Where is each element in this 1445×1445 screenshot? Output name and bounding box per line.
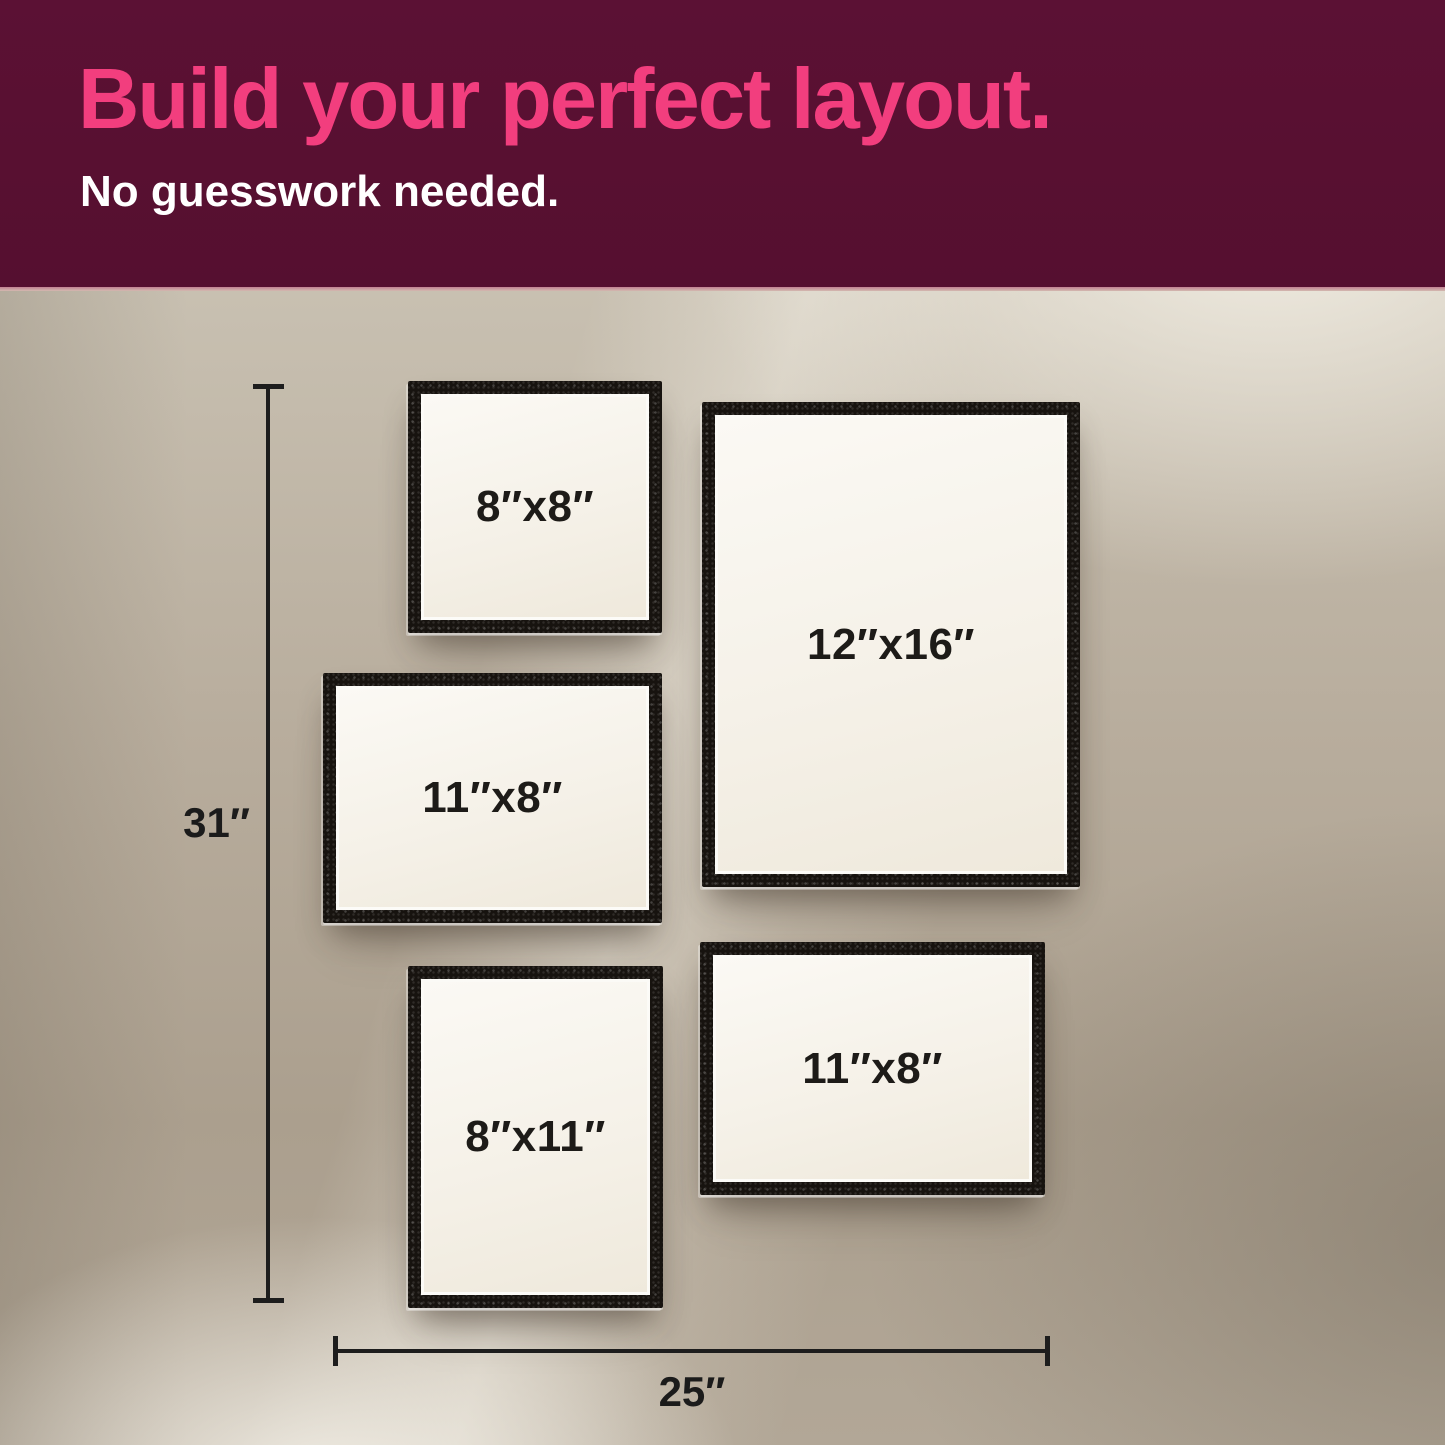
width-dimension-label: 25″ [612, 1368, 772, 1416]
wall-photo: 8″x8″ 12″x16″ 11″x8″ 8″x11″ 11″x8″ 3 [0, 291, 1445, 1445]
frame-12x16-paper: 12″x16″ [715, 415, 1067, 874]
height-dimension-line [266, 386, 270, 1302]
frame-11x8-bottom-right-paper: 11″x8″ [713, 955, 1032, 1182]
frame-size-label: 12″x16″ [807, 620, 975, 670]
width-dimension-left-cap [333, 1336, 338, 1366]
height-dimension-top-cap [253, 384, 284, 389]
frame-size-label: 8″x8″ [476, 482, 594, 532]
height-dimension-label: 31″ [140, 799, 250, 847]
width-dimension-line [335, 1349, 1048, 1353]
frame-11x8-middle-left-paper: 11″x8″ [336, 686, 649, 910]
frame-8x11-paper: 8″x11″ [421, 979, 650, 1295]
frame-8x8-paper: 8″x8″ [421, 394, 649, 620]
frame-8x11: 8″x11″ [408, 966, 663, 1308]
page-subtitle: No guesswork needed. [80, 168, 559, 216]
frame-size-label: 11″x8″ [802, 1044, 943, 1094]
frame-8x8: 8″x8″ [408, 381, 662, 633]
frame-size-label: 11″x8″ [422, 773, 563, 823]
width-dimension-right-cap [1045, 1336, 1050, 1366]
page-title: Build your perfect layout. [78, 54, 1051, 146]
height-dimension-bottom-cap [253, 1298, 284, 1303]
gallery-wall-infographic: Build your perfect layout. No guesswork … [0, 0, 1445, 1445]
frame-12x16: 12″x16″ [702, 402, 1080, 887]
header-banner: Build your perfect layout. No guesswork … [0, 0, 1445, 287]
frame-11x8-middle-left: 11″x8″ [323, 673, 662, 923]
frame-11x8-bottom-right: 11″x8″ [700, 942, 1045, 1195]
frame-size-label: 8″x11″ [465, 1112, 606, 1162]
